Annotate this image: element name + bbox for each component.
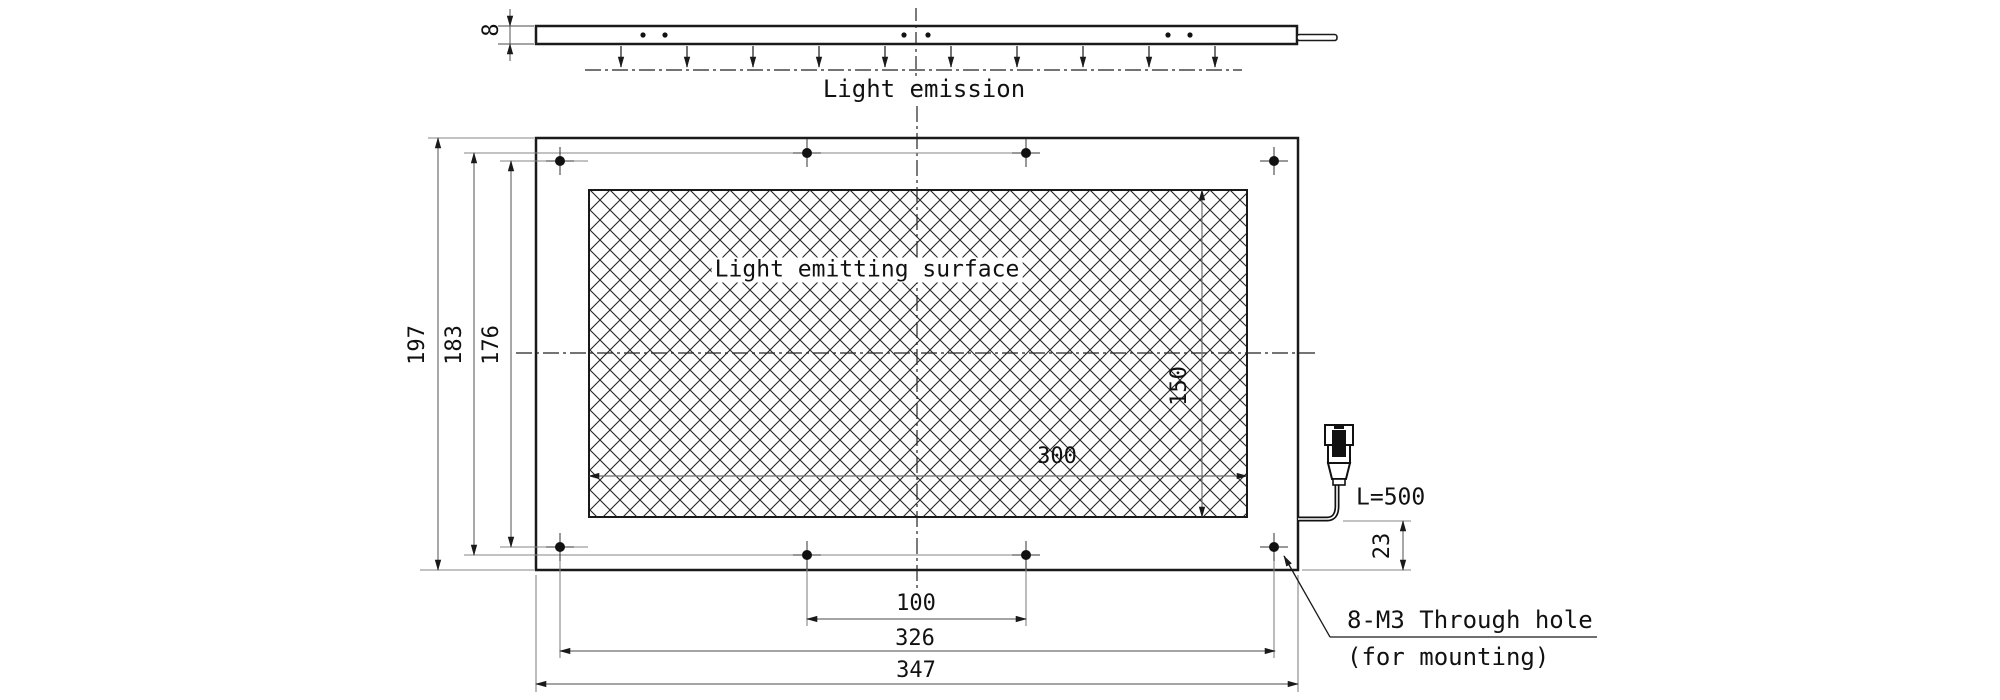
mounting-hole: [1021, 550, 1031, 560]
surface-height-dim-label: 150: [1169, 366, 1191, 406]
corner-hole-cols-dim-label: 326: [895, 628, 935, 650]
through-hole-callout-line2: (for mounting): [1347, 645, 1549, 669]
side-view: [498, 8, 1337, 78]
light-emission-label: Light emission: [823, 77, 1025, 101]
technical-drawing-canvas: 8 Light emission Light emitting surface …: [0, 0, 2000, 700]
drawing-linework: [0, 0, 2000, 700]
mounting-hole: [802, 550, 812, 560]
through-hole-callout-line1: 8-M3 Through hole: [1347, 608, 1593, 632]
cable-and-connector: [1298, 425, 1353, 519]
mounting-hole: [802, 148, 812, 158]
mounting-hole: [555, 156, 565, 166]
cable-length-label: L=500: [1356, 487, 1425, 510]
light-emitting-surface-label: Light emitting surface: [712, 258, 1023, 283]
mounting-hole: [1021, 148, 1031, 158]
light-emission-arrows: [621, 46, 1215, 67]
front-view: [420, 106, 1597, 692]
mid-hole-rows-dim-label: 183: [444, 325, 466, 365]
mounting-hole: [1269, 542, 1279, 552]
mounting-hole: [555, 542, 565, 552]
connector: [1325, 425, 1353, 485]
mounting-hole: [1269, 156, 1279, 166]
mid-hole-cols-dim-label: 100: [896, 593, 936, 615]
outer-height-dim-label: 197: [407, 325, 429, 365]
thickness-dim-label: 8: [481, 23, 503, 36]
outer-width-dim-label: 347: [896, 660, 936, 682]
surface-width-dim-label: 300: [1037, 446, 1077, 468]
cable-offset-dim-label: 23: [1372, 533, 1394, 560]
corner-hole-rows-dim-label: 176: [481, 325, 503, 365]
side-view-cable-stub: [1297, 35, 1337, 41]
cable: [1298, 484, 1337, 519]
